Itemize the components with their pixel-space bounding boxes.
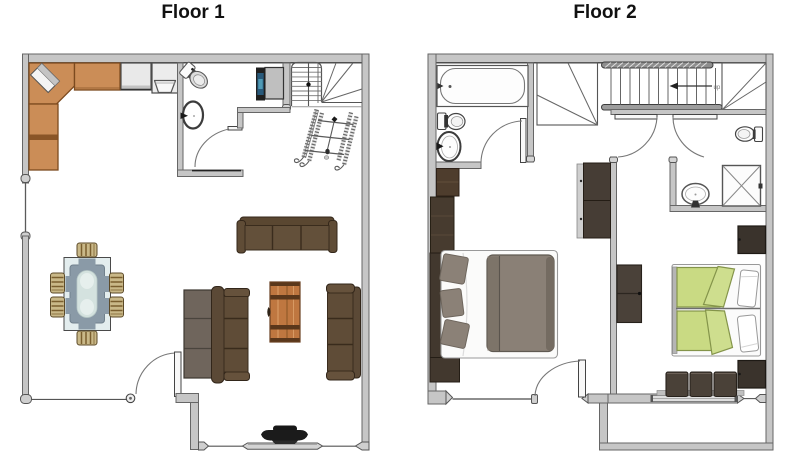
svg-text:Floor 1: Floor 1 <box>161 2 225 23</box>
svg-text:up: up <box>714 85 721 91</box>
svg-text:Floor 2: Floor 2 <box>573 2 636 23</box>
